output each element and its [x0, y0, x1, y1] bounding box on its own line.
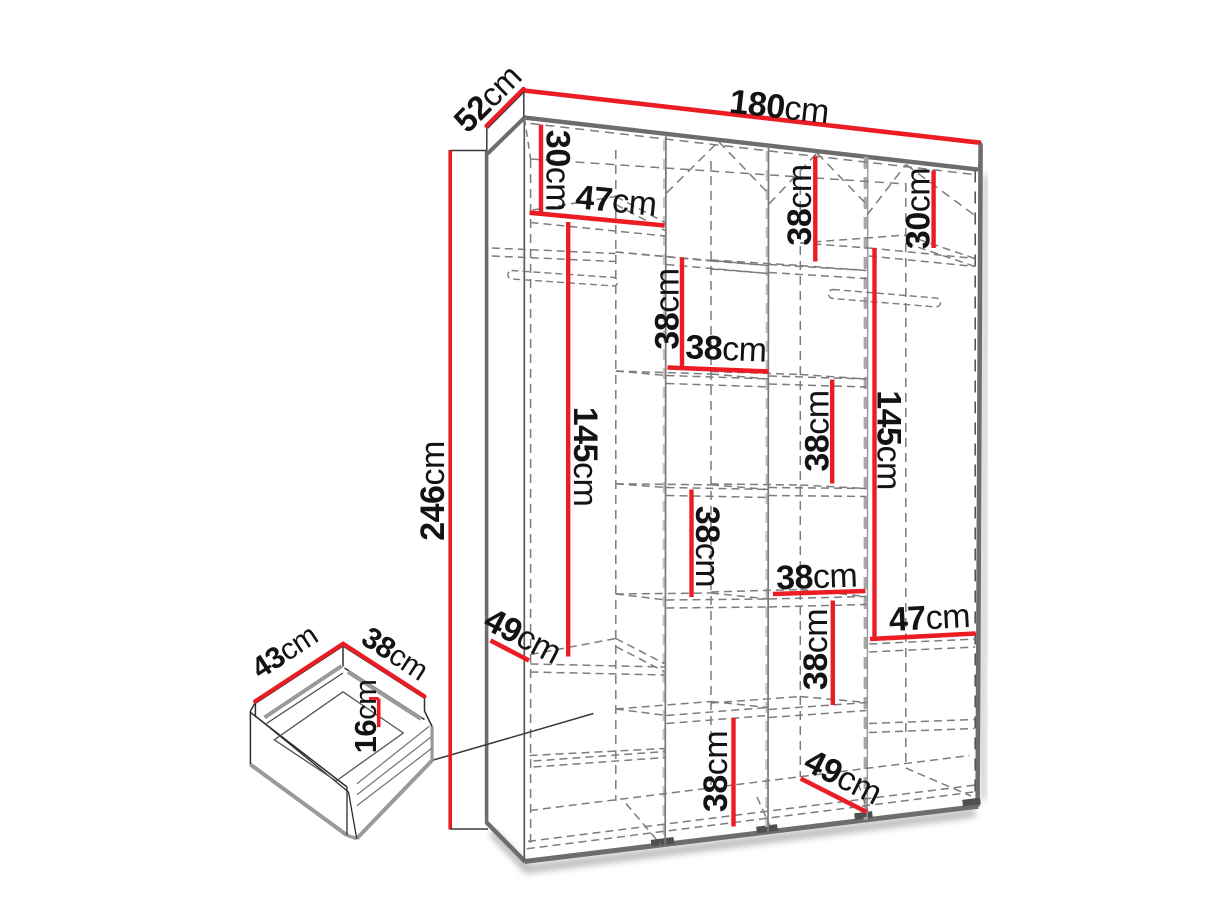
svg-text:38cm: 38cm — [797, 609, 835, 690]
svg-text:145cm: 145cm — [566, 407, 604, 507]
svg-text:246cm: 246cm — [414, 441, 452, 541]
svg-text:38cm: 38cm — [781, 164, 819, 245]
svg-text:30cm: 30cm — [900, 168, 938, 249]
svg-text:47cm: 47cm — [888, 597, 971, 639]
svg-text:47cm: 47cm — [574, 178, 658, 223]
svg-text:16cm: 16cm — [348, 680, 383, 754]
svg-text:145cm: 145cm — [870, 390, 908, 490]
svg-text:38cm: 38cm — [685, 328, 768, 370]
svg-text:38cm: 38cm — [688, 506, 726, 587]
svg-text:38cm: 38cm — [799, 390, 837, 471]
svg-text:38cm: 38cm — [649, 268, 687, 349]
svg-text:38cm: 38cm — [775, 557, 857, 598]
svg-text:30cm: 30cm — [539, 130, 577, 211]
svg-text:38cm: 38cm — [697, 731, 735, 812]
